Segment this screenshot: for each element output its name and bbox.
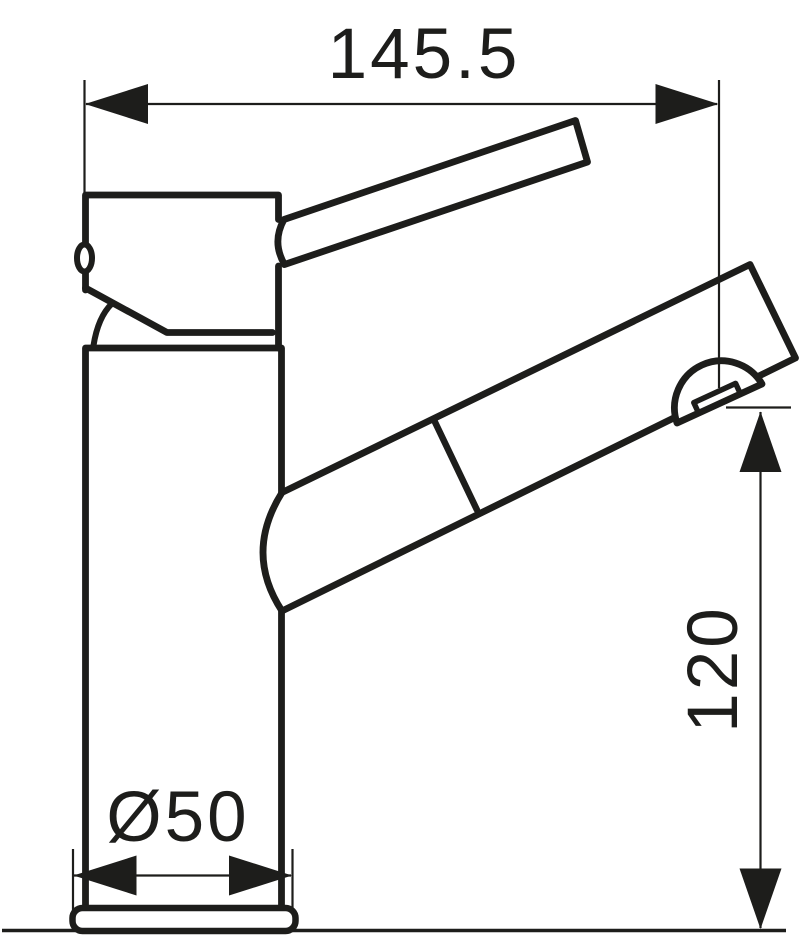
- width-dimension-label: 145.5: [328, 15, 521, 94]
- faucet-dimension-drawing: 145.5 120 Ø50: [0, 0, 800, 937]
- handle-pivot-pin: [77, 245, 92, 272]
- dimension-height: 120: [674, 408, 791, 930]
- width-arrowhead-right: [656, 84, 719, 124]
- mixer-head-housing: [86, 195, 279, 348]
- diameter-dimension-label: Ø50: [106, 778, 249, 857]
- height-arrowhead-top: [740, 412, 782, 473]
- height-dimension-label: 120: [674, 605, 753, 732]
- height-arrowhead-bottom: [740, 869, 782, 930]
- width-arrowhead-left: [85, 84, 148, 124]
- technical-drawing-page: 145.5 120 Ø50: [0, 0, 800, 937]
- pull-out-spout: [263, 265, 796, 612]
- mixer-head-front-arc: [94, 304, 113, 346]
- base-plate: [73, 908, 296, 931]
- lever-handle: [278, 121, 588, 265]
- mixer-head-bottom-edge: [86, 288, 273, 333]
